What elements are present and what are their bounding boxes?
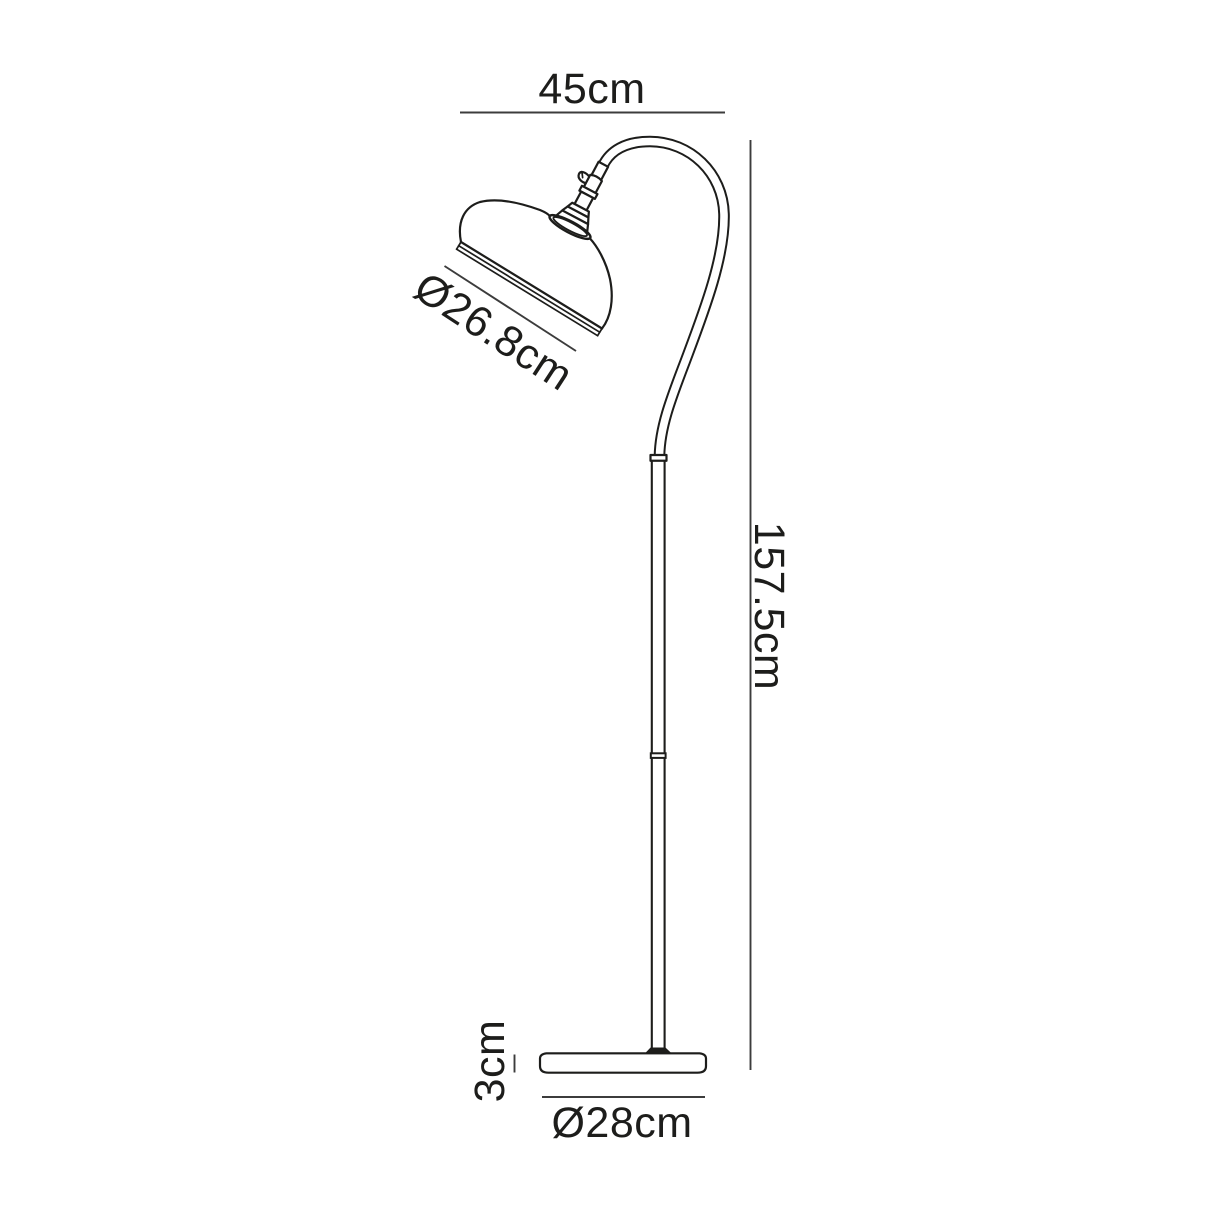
lamp-dimension-diagram: 45cm 157.5cm Ø26.8cm 3cm Ø28cm [0, 0, 1214, 1214]
dimension-label-arm-reach: 45cm [538, 65, 645, 113]
dimension-label-total-height: 157.5cm [745, 522, 793, 690]
lamp-pole [647, 455, 671, 1053]
dimension-diagram-canvas: 45cm 157.5cm Ø26.8cm 3cm Ø28cm [0, 0, 1214, 1214]
dimension-label-base-height: 3cm [466, 1020, 514, 1103]
dimension-label-base-diameter: Ø28cm [551, 1099, 692, 1147]
gooseneck-arm [603, 142, 724, 457]
base-body [540, 1053, 706, 1072]
pole-joint-mid [651, 753, 666, 758]
pole-foot [647, 1048, 671, 1053]
lamp-base [540, 1053, 706, 1072]
